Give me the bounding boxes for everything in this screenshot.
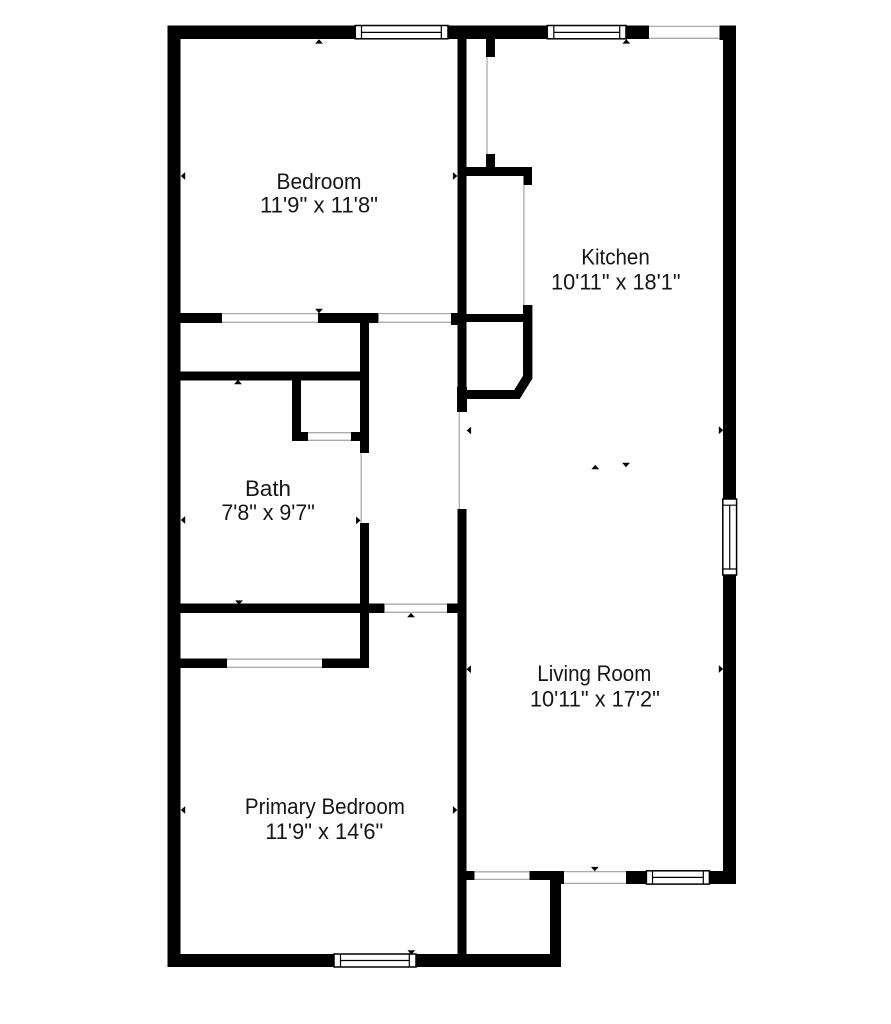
svg-text:Bath: Bath	[245, 476, 291, 501]
svg-text:Kitchen: Kitchen	[581, 245, 650, 270]
svg-text:11'9" x 14'6": 11'9" x 14'6"	[265, 819, 383, 844]
svg-text:10'11" x 18'1": 10'11" x 18'1"	[551, 269, 681, 294]
svg-text:10'11" x 17'2": 10'11" x 17'2"	[530, 686, 660, 711]
svg-text:11'9" x 11'8": 11'9" x 11'8"	[260, 193, 378, 218]
svg-text:7'8" x 9'7": 7'8" x 9'7"	[221, 500, 315, 525]
svg-text:Living Room: Living Room	[537, 661, 651, 686]
svg-text:Primary Bedroom: Primary Bedroom	[245, 794, 405, 819]
svg-text:Bedroom: Bedroom	[277, 169, 362, 194]
